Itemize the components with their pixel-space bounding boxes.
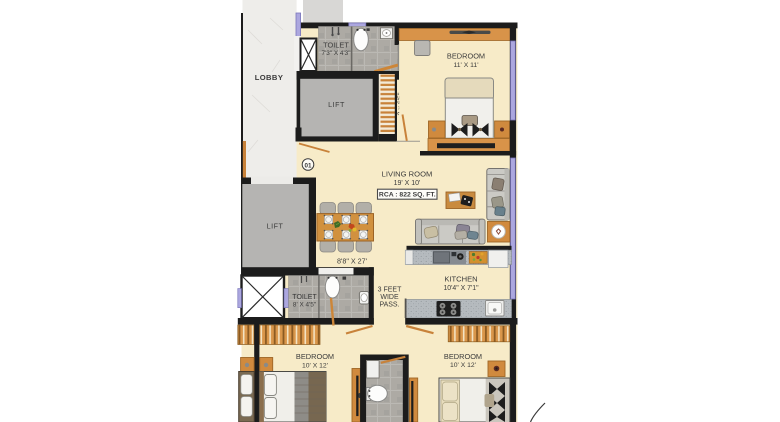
svg-text:10'4" X 7'1": 10'4" X 7'1" [443,285,479,292]
svg-text:BEDROOM: BEDROOM [296,352,334,361]
svg-text:3 FEET: 3 FEET [378,286,402,293]
svg-text:19' X 10': 19' X 10' [394,180,421,187]
svg-text:11' X 11': 11' X 11' [453,62,478,69]
svg-text:8'8" X 27': 8'8" X 27' [337,257,368,266]
svg-text:TOILET: TOILET [323,41,349,50]
svg-text:BEDROOM: BEDROOM [447,52,485,61]
svg-text:10' X 12': 10' X 12' [302,363,328,370]
svg-text:8' X 4'5": 8' X 4'5" [293,302,316,309]
svg-text:10' X 12': 10' X 12' [450,362,476,369]
svg-text:WIDE: WIDE [380,294,399,301]
svg-text:KITCHEN: KITCHEN [444,275,477,284]
svg-text:LIFT: LIFT [267,222,284,231]
svg-text:01: 01 [304,162,312,169]
svg-text:TOILET: TOILET [292,294,317,301]
svg-text:LIVING ROOM: LIVING ROOM [382,170,433,179]
svg-text:LOBBY: LOBBY [255,73,284,82]
svg-text:BEDROOM: BEDROOM [444,352,482,361]
svg-text:RCA : 822 SQ. FT.: RCA : 822 SQ. FT. [379,192,436,199]
svg-text:PASS.: PASS. [379,301,399,308]
svg-text:7'3" X 4'3": 7'3" X 4'3" [321,50,350,57]
svg-text:LIFT: LIFT [328,100,345,109]
